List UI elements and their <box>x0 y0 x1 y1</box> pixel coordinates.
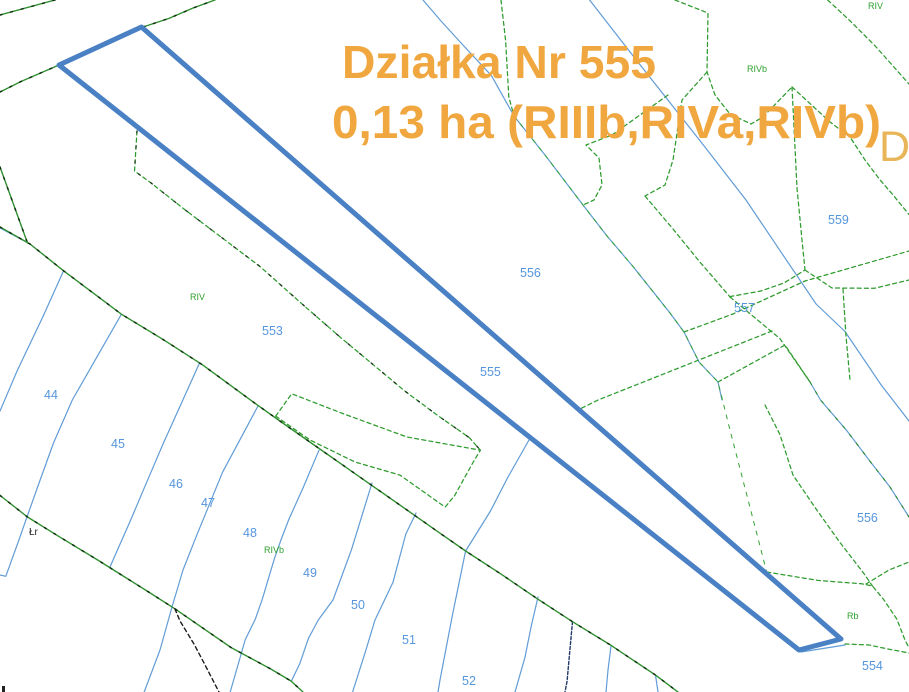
svg-text:RIV: RIV <box>190 292 205 302</box>
svg-text:Działka Nr 555: Działka Nr 555 <box>342 36 656 88</box>
svg-text:48: 48 <box>243 526 257 540</box>
svg-text:47: 47 <box>201 496 215 510</box>
svg-text:556: 556 <box>520 266 541 280</box>
svg-text:0,13 ha (RIIIb,RIVa,RIVb): 0,13 ha (RIIIb,RIVa,RIVb) <box>332 96 881 148</box>
svg-text:45: 45 <box>111 437 125 451</box>
svg-text:RIVb: RIVb <box>264 545 284 555</box>
svg-text:46: 46 <box>169 477 183 491</box>
svg-text:50: 50 <box>351 598 365 612</box>
svg-text:51: 51 <box>402 633 416 647</box>
svg-text:49: 49 <box>303 566 317 580</box>
svg-text:52: 52 <box>462 674 476 688</box>
svg-text:554: 554 <box>862 659 883 673</box>
svg-text:44: 44 <box>44 388 58 402</box>
svg-text:555: 555 <box>480 365 501 379</box>
svg-text:Łr: Łr <box>29 527 39 538</box>
svg-text:RIVb: RIVb <box>747 64 767 74</box>
svg-text:556: 556 <box>857 511 878 525</box>
svg-text:553: 553 <box>262 324 283 338</box>
svg-text:557: 557 <box>734 301 755 315</box>
svg-text:Rb: Rb <box>847 611 859 621</box>
svg-text:D: D <box>879 123 909 171</box>
svg-text:559: 559 <box>828 213 849 227</box>
svg-text:RIV: RIV <box>868 1 883 11</box>
